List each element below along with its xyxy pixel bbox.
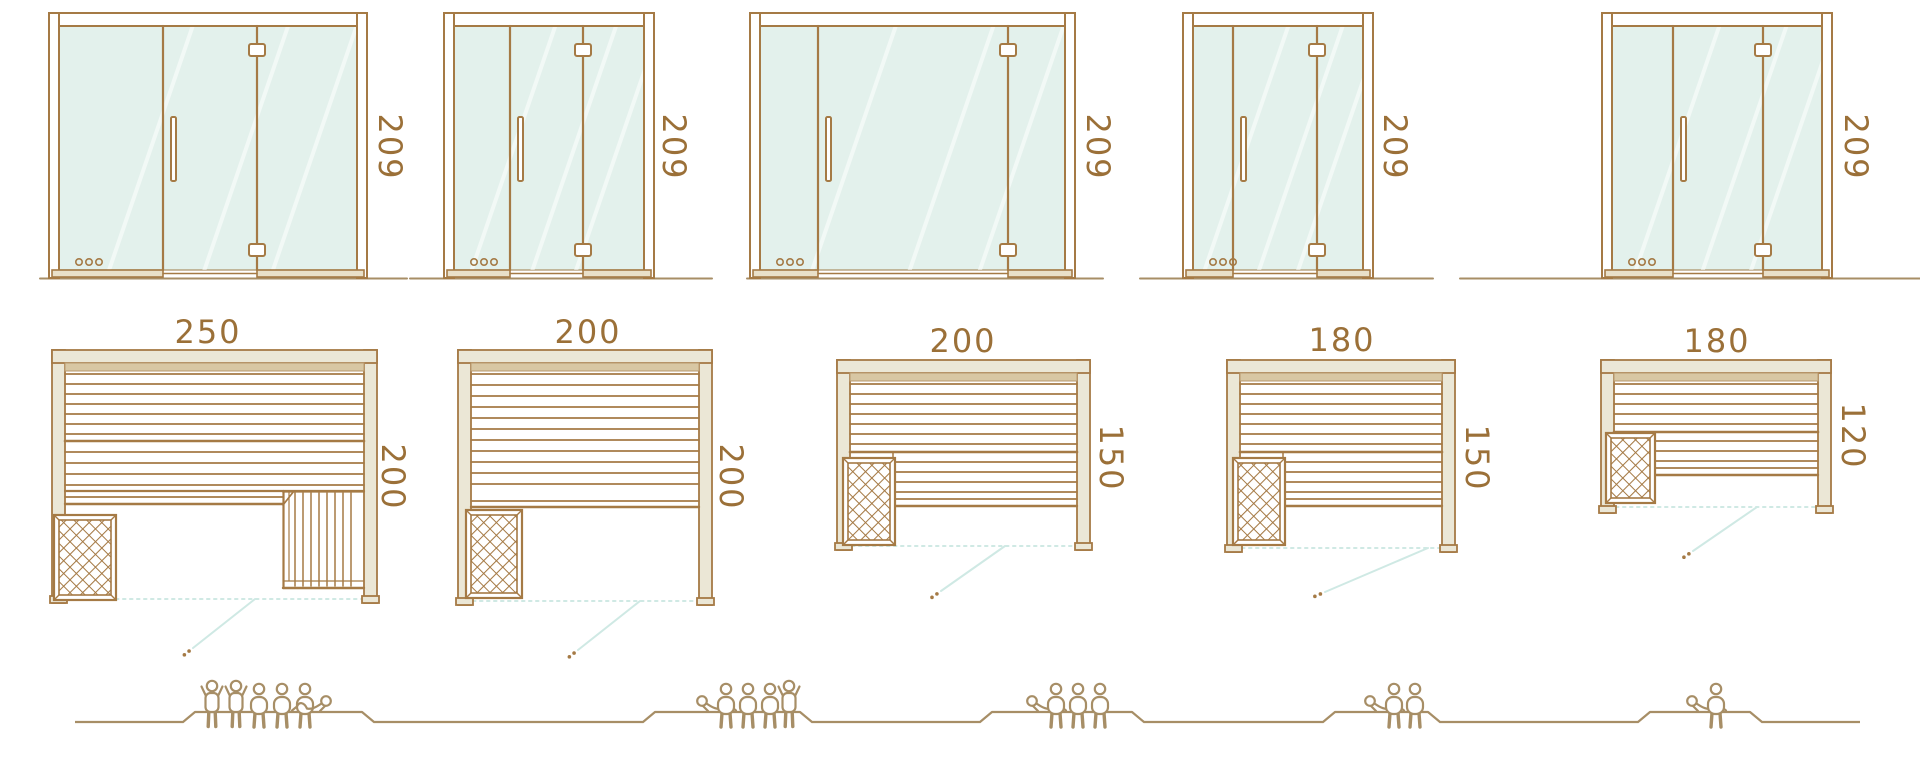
wall-back — [1227, 360, 1455, 373]
door-handle-icon — [171, 117, 176, 181]
door-post-right — [1065, 13, 1075, 278]
wall-right — [1442, 360, 1455, 552]
door-lintel — [1183, 13, 1373, 26]
bench-back-edge — [850, 373, 1077, 381]
door-handle-mark — [187, 649, 191, 653]
glass-panel — [59, 26, 357, 270]
hinge-icon — [575, 244, 591, 256]
door-handle-icon — [1681, 117, 1686, 181]
bottom-rail — [447, 270, 510, 277]
door-lintel — [750, 13, 1075, 26]
hinge-icon — [1309, 44, 1325, 56]
person-sitting-icon — [762, 684, 778, 727]
heater-icon — [54, 515, 116, 600]
wall-back — [458, 350, 712, 363]
bench-lower — [893, 452, 1077, 506]
person-sitting-icon — [1407, 684, 1423, 727]
door-handle-mark — [1682, 555, 1686, 559]
bottom-rail — [583, 270, 651, 277]
door-height-label: 209 — [1082, 113, 1114, 180]
wall-foot — [1816, 506, 1833, 513]
wall-back — [837, 360, 1090, 373]
bottom-rail — [1763, 270, 1829, 277]
door-handle-mark — [1313, 595, 1317, 599]
hinge-icon — [1000, 44, 1016, 56]
heater-icon — [466, 510, 522, 598]
hinge-icon — [1000, 244, 1016, 256]
door-handle-mark — [930, 596, 934, 600]
person-sitting-icon — [718, 684, 734, 727]
capacity-group — [1027, 684, 1108, 727]
wall-back — [1601, 360, 1831, 373]
door-handle-mark — [183, 653, 187, 657]
floor-plan — [1599, 360, 1833, 559]
person-sitting-icon — [1386, 684, 1402, 727]
door-post-left — [444, 13, 454, 278]
ground-line — [75, 712, 1860, 722]
door-height-label: 209 — [658, 113, 690, 180]
capacity-group — [1687, 684, 1726, 727]
bench-upper — [1614, 384, 1818, 432]
door-lintel — [1602, 13, 1832, 26]
plan-width-label: 200 — [929, 325, 996, 357]
wall-foot — [1440, 545, 1457, 552]
floor-plan — [835, 360, 1092, 599]
person-sitting-icon — [251, 684, 267, 727]
door-post-left — [1602, 13, 1612, 278]
door-height-label: 209 — [1379, 113, 1411, 180]
door-elevation — [747, 13, 1103, 279]
bottom-rail — [1605, 270, 1673, 277]
heater-icon — [843, 458, 895, 545]
bench-back-edge — [1614, 373, 1818, 381]
door-post-right — [644, 13, 654, 278]
door-post-right — [1822, 13, 1832, 278]
capacity-group — [1365, 684, 1423, 727]
door-post-left — [1183, 13, 1193, 278]
door-handle-mark — [568, 655, 572, 659]
sauna-size-diagram: 209 209 209 209 209 250 200 200 180 180 … — [0, 0, 1920, 764]
hinge-icon — [249, 244, 265, 256]
glass-panel — [760, 26, 1065, 270]
bottom-rail — [753, 270, 818, 277]
bench-upper — [471, 374, 699, 484]
bench-lower — [1653, 432, 1818, 475]
door-elevation — [40, 13, 407, 279]
plan-depth-label: 120 — [1837, 402, 1869, 469]
person-sitting-icon — [1092, 684, 1108, 727]
plan-width-label: 200 — [554, 316, 621, 348]
bench-upper — [850, 384, 1077, 452]
door-swing-line — [941, 546, 1005, 591]
wall-right — [699, 350, 712, 605]
door-height-label: 209 — [1840, 113, 1872, 180]
person-standing-icon — [226, 681, 247, 727]
plan-depth-label: 200 — [377, 443, 409, 510]
wall-right — [1077, 360, 1090, 550]
person-sitting-icon — [1048, 684, 1064, 727]
wall-back — [52, 350, 377, 363]
person-standing-icon — [779, 681, 800, 727]
bench-front — [471, 501, 699, 507]
wall-foot — [697, 598, 714, 605]
wall-foot — [1075, 543, 1092, 550]
bench-back-edge — [1240, 373, 1442, 381]
bottom-rail — [52, 270, 163, 277]
door-swing-line — [193, 599, 255, 648]
bench-return — [283, 491, 364, 588]
door-handle-icon — [518, 117, 523, 181]
door-swing-line — [1693, 507, 1757, 551]
door-handle-mark — [1687, 552, 1691, 556]
hinge-icon — [1755, 244, 1771, 256]
bench-back-edge — [471, 363, 699, 371]
bottom-rail — [257, 270, 364, 277]
person-sitting-icon — [274, 684, 290, 727]
bottom-rail — [1186, 270, 1233, 277]
wall-right — [1818, 360, 1831, 513]
bottom-rail — [1008, 270, 1072, 277]
plan-depth-label: 150 — [1461, 424, 1493, 491]
door-height-label: 209 — [374, 113, 406, 180]
wall-foot — [1599, 506, 1616, 513]
plan-depth-label: 200 — [715, 443, 747, 510]
door-post-left — [49, 13, 59, 278]
heater-icon — [1606, 433, 1655, 503]
bottom-rail — [1317, 270, 1370, 277]
floor-plan — [50, 350, 379, 657]
hinge-icon — [1755, 44, 1771, 56]
diagram-artwork — [0, 0, 1920, 764]
floor-plan — [1225, 360, 1457, 598]
person-standing-icon — [202, 681, 223, 727]
door-lintel — [49, 13, 367, 26]
bench-upper — [1240, 384, 1442, 452]
person-sitting-icon — [1708, 684, 1724, 727]
door-post-left — [750, 13, 760, 278]
hinge-icon — [575, 44, 591, 56]
hinge-icon — [249, 44, 265, 56]
capacity-group — [202, 681, 331, 727]
bench-lower — [1283, 452, 1442, 506]
capacity-group — [697, 681, 799, 727]
heater-icon — [1233, 458, 1285, 545]
plan-depth-label: 150 — [1095, 424, 1127, 491]
door-post-right — [357, 13, 367, 278]
door-handle-mark — [935, 592, 939, 596]
door-handle-icon — [1241, 117, 1246, 181]
person-sitting-icon — [740, 684, 756, 727]
plan-width-label: 250 — [174, 316, 241, 348]
door-post-right — [1363, 13, 1373, 278]
wall-foot — [362, 596, 379, 603]
door-lintel — [444, 13, 654, 26]
plan-width-label: 180 — [1683, 325, 1750, 357]
door-swing-line — [1325, 548, 1428, 592]
person-sitting-icon — [1070, 684, 1086, 727]
door-swing-line — [578, 601, 640, 650]
plan-width-label: 180 — [1308, 324, 1375, 356]
door-handle-icon — [826, 117, 831, 181]
bench-back-edge — [65, 363, 364, 371]
door-handle-mark — [1319, 592, 1323, 596]
hinge-icon — [1309, 244, 1325, 256]
door-handle-mark — [572, 651, 576, 655]
bench-upper — [65, 374, 364, 441]
floor-plan — [456, 350, 714, 659]
